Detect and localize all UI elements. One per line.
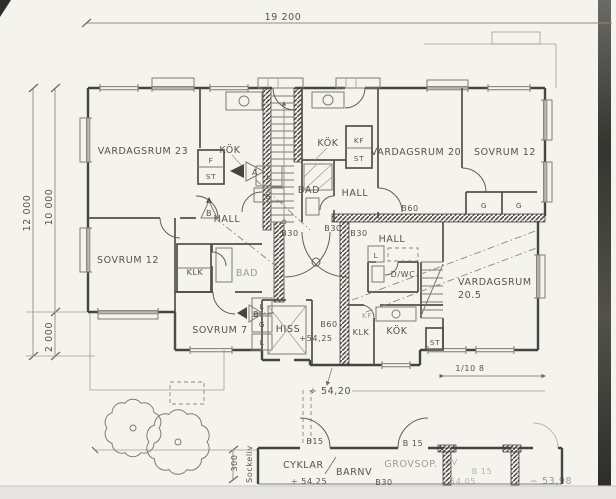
dim-total-height: 12 000 — [22, 195, 33, 232]
fixture-kf-right: KF — [362, 311, 372, 320]
fixture-linen1-left: L — [260, 302, 265, 311]
fixture-cooler-left: K — [266, 173, 271, 182]
room-living-mid: VARDAGSRUM 20 — [371, 147, 462, 158]
fixture-linen-right: L — [374, 251, 379, 260]
out-door2-label: B 15 — [403, 439, 424, 448]
fixture-linen2-left: L — [260, 338, 265, 347]
fixture-pantry-mid: ST — [354, 154, 364, 163]
room-hall-left: HALL — [214, 214, 241, 225]
tree-trunk — [130, 425, 136, 431]
exterior-walls — [88, 88, 545, 365]
fixture-fridge-left: F — [209, 156, 214, 165]
scan-shadow-band — [598, 0, 611, 486]
floor-plan-drawing: 19 200 12 000 10 000 2 000 1/10 8 300 So… — [0, 0, 616, 499]
fixture-wardrobe-left: G — [265, 192, 271, 201]
level-landing: +54,25 — [299, 334, 332, 343]
fire-b60-mid-label: B60 — [320, 320, 337, 329]
room-living-right-line2: 20.5 — [458, 290, 482, 301]
room-kitchen-mid: KÖK — [317, 138, 338, 149]
section-marker-b1: B — [206, 209, 212, 218]
b60-wall — [332, 214, 545, 222]
dim-main-depth: 10 000 — [44, 189, 55, 226]
fixture-wardrobe2-mid: G — [516, 201, 522, 210]
floor-plan-scan: 19 200 12 000 10 000 2 000 1/10 8 300 So… — [0, 0, 616, 499]
room-closet-right: KLK — [353, 328, 370, 337]
entrance-porches — [258, 78, 380, 88]
fire-b30-label-2: B30 — [324, 224, 341, 233]
level-outbuilding-right: 54,05 — [450, 477, 476, 486]
room-prams: BARNV — [336, 467, 372, 478]
room-hall-mid: HALL — [342, 188, 369, 199]
roof-bay — [492, 32, 540, 44]
room-waste: GROVSOP. — [384, 459, 437, 470]
room-bedroom2-left: SOVRUM 7 — [192, 325, 247, 336]
terrace-outline — [90, 312, 224, 390]
level-ground-right: − 53,98 — [530, 476, 572, 487]
tree — [105, 399, 161, 456]
room-bath-mid: BAD — [298, 185, 320, 196]
dim-plinth-offset: 300 — [230, 454, 239, 471]
room-kitchen-left: KÖK — [219, 145, 240, 156]
level-yard: ÷ 54,20 — [309, 386, 351, 397]
out-door3-label: B 15 — [472, 467, 493, 476]
room-bedroom-right: SOVRUM 12 — [474, 147, 536, 158]
tree-trunk — [175, 439, 181, 445]
room-living-right-line1: VARDAGSRUM — [458, 277, 532, 288]
room-wc-right: D/WC — [391, 270, 416, 279]
scan-corner-mark — [0, 0, 11, 17]
scan-bottom-strip — [0, 486, 616, 499]
plinth-word: Sockeliv — [245, 445, 254, 483]
fixture-wardrobe2-left: G — [259, 320, 265, 329]
room-waste2: AV — [446, 458, 458, 467]
section-marker-a: A — [252, 168, 258, 177]
roof-overhang — [424, 44, 556, 88]
fire-b30-label-3: B30 — [350, 229, 367, 238]
dim-total-width: 19 200 — [265, 12, 302, 23]
fixture-kf-mid: KF — [354, 136, 364, 145]
fire-b30-label-1: B30 — [281, 229, 298, 238]
room-kitchen-right: KÖK — [386, 326, 407, 337]
room-hall-right: HALL — [379, 234, 406, 245]
dim-terrace-depth: 2 000 — [44, 322, 55, 352]
fire-b60-label: B60 — [401, 204, 418, 213]
out-door1-label: B15 — [306, 437, 323, 446]
room-closet-left: KLK — [187, 268, 204, 277]
room-living-left: VARDAGSRUM 23 — [98, 146, 189, 157]
interior-walls — [88, 88, 537, 365]
room-bedroom-left: SOVRUM 12 — [97, 255, 159, 266]
label-slash — [325, 457, 336, 474]
fixture-pantry-left: ST — [206, 172, 216, 181]
section-marker-b2: B — [253, 310, 259, 319]
fixture-wardrobe1-mid: G — [481, 201, 487, 210]
fixture-pantry-right: ST — [430, 338, 440, 347]
out-door-b30-label: B30 — [375, 478, 392, 487]
room-bath-left: BAD — [236, 268, 258, 279]
level-outbuilding: ÷ 54,25 — [291, 477, 327, 486]
room-elevator: HISS — [276, 324, 300, 335]
room-bikes: CYKLAR — [283, 460, 324, 471]
dim-stair-note: 1/10 8 — [455, 364, 484, 373]
stair-core — [271, 96, 294, 224]
garden-structure — [170, 382, 204, 404]
windows — [80, 78, 552, 369]
